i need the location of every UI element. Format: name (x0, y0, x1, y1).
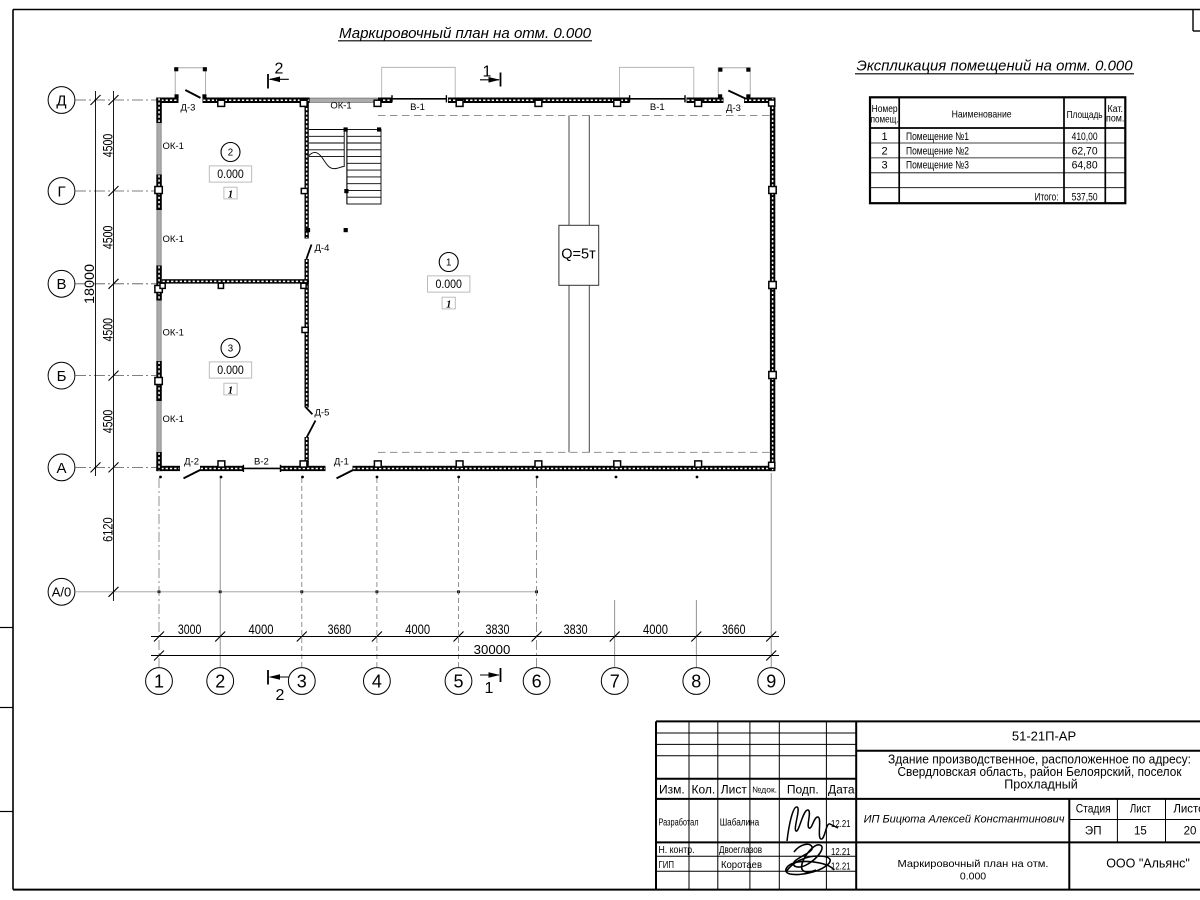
svg-text:Коротаев: Коротаев (721, 860, 762, 871)
svg-text:12.21: 12.21 (831, 862, 851, 873)
svg-text:1: 1 (228, 190, 233, 201)
svg-text:А: А (56, 460, 66, 477)
svg-text:4500: 4500 (101, 134, 116, 158)
svg-text:ГИП: ГИП (659, 860, 675, 871)
svg-text:1: 1 (483, 64, 492, 81)
svg-text:2: 2 (276, 687, 285, 704)
svg-text:410,00: 410,00 (1072, 131, 1098, 143)
svg-text:Б: Б (57, 368, 67, 385)
svg-text:А/0: А/0 (52, 584, 72, 599)
svg-text:0.000: 0.000 (435, 278, 462, 291)
svg-text:4500: 4500 (101, 410, 116, 434)
svg-text:3: 3 (297, 672, 307, 692)
svg-text:Кол.: Кол. (692, 783, 716, 797)
svg-text:1: 1 (446, 257, 451, 268)
svg-text:18000: 18000 (82, 264, 97, 304)
svg-text:ОК-1: ОК-1 (163, 414, 184, 425)
svg-text:Д-4: Д-4 (315, 243, 330, 254)
svg-text:9: 9 (766, 672, 776, 692)
svg-text:12.21: 12.21 (831, 847, 851, 858)
svg-text:51-21П-АР: 51-21П-АР (1012, 729, 1076, 744)
svg-text:0.000: 0.000 (960, 871, 986, 883)
svg-text:1: 1 (154, 672, 164, 692)
svg-text:Стадия: Стадия (1076, 804, 1111, 816)
svg-text:ОК-1: ОК-1 (330, 100, 351, 111)
svg-text:5: 5 (453, 672, 463, 692)
svg-text:2: 2 (228, 147, 233, 158)
svg-text:Экспликация помещений на отм.: Экспликация помещений на отм. 0.000 (857, 58, 1134, 75)
svg-text:3660: 3660 (722, 622, 746, 637)
svg-text:Разработал: Разработал (659, 817, 699, 829)
svg-text:Q=5т: Q=5т (561, 247, 596, 263)
svg-text:64,80: 64,80 (1072, 159, 1098, 171)
svg-text:ИП Бицюта Алексей Константинов: ИП Бицюта Алексей Константинович (864, 814, 1065, 826)
svg-text:4500: 4500 (101, 318, 116, 342)
svg-text:4500: 4500 (101, 226, 116, 250)
svg-text:8: 8 (691, 672, 701, 692)
svg-text:3000: 3000 (178, 622, 202, 637)
svg-text:В-1: В-1 (650, 102, 665, 113)
svg-text:Двоеглазов: Двоеглазов (719, 845, 762, 856)
svg-text:3830: 3830 (564, 622, 588, 637)
svg-text:Дата: Дата (828, 783, 855, 797)
svg-text:ОК-1: ОК-1 (163, 234, 184, 245)
svg-text:2: 2 (275, 61, 284, 78)
svg-text:Изм.: Изм. (659, 783, 685, 797)
svg-text:4000: 4000 (405, 622, 430, 637)
svg-text:В-1: В-1 (410, 102, 425, 113)
svg-text:ООО "Альянс": ООО "Альянс" (1106, 857, 1190, 871)
svg-text:Д-3: Д-3 (181, 103, 196, 114)
svg-text:№док.: №док. (752, 785, 777, 795)
svg-text:Д: Д (56, 92, 66, 109)
svg-text:6120: 6120 (101, 517, 116, 542)
svg-text:Маркировочный план на отм. 0.0: Маркировочный план на отм. 0.000 (339, 25, 592, 42)
svg-text:1: 1 (446, 300, 451, 311)
svg-text:Лист: Лист (721, 783, 748, 797)
svg-text:0.000: 0.000 (217, 168, 244, 181)
svg-text:2: 2 (882, 145, 888, 157)
svg-text:Помещение №1: Помещение №1 (906, 131, 969, 143)
svg-text:ОК-1: ОК-1 (163, 327, 184, 338)
svg-text:Прохладный: Прохладный (1004, 778, 1077, 792)
svg-text:помещ.: помещ. (871, 114, 899, 125)
svg-text:12.21: 12.21 (831, 819, 851, 830)
svg-text:15: 15 (1134, 826, 1147, 838)
svg-text:Лист: Лист (1130, 804, 1152, 816)
svg-text:Д-3: Д-3 (726, 103, 741, 114)
svg-text:4000: 4000 (249, 622, 274, 637)
svg-text:3830: 3830 (486, 622, 510, 637)
svg-text:Г: Г (57, 183, 65, 200)
svg-text:7: 7 (610, 672, 620, 692)
svg-text:3: 3 (228, 343, 233, 354)
svg-text:Подп.: Подп. (787, 783, 819, 797)
svg-text:1: 1 (228, 386, 233, 397)
svg-text:Помещение №2: Помещение №2 (906, 145, 969, 157)
svg-text:20: 20 (1184, 826, 1197, 838)
svg-text:Листов: Листов (1173, 804, 1200, 816)
svg-text:6: 6 (532, 672, 542, 692)
svg-text:4: 4 (372, 672, 382, 692)
svg-text:1: 1 (485, 680, 494, 697)
svg-text:Д-1: Д-1 (334, 457, 349, 468)
svg-text:В-2: В-2 (254, 457, 269, 468)
svg-text:пом.: пом. (1106, 114, 1124, 125)
svg-text:ОК-1: ОК-1 (163, 141, 184, 152)
svg-text:Шабалина: Шабалина (720, 817, 760, 829)
svg-text:4000: 4000 (643, 622, 668, 637)
svg-text:62,70: 62,70 (1072, 145, 1098, 157)
svg-text:0.000: 0.000 (217, 364, 244, 377)
svg-text:2: 2 (215, 672, 225, 692)
svg-text:537,50: 537,50 (1072, 192, 1098, 204)
svg-text:Наименование: Наименование (952, 109, 1012, 120)
svg-text:3680: 3680 (328, 622, 352, 637)
svg-text:Площадь: Площадь (1067, 110, 1103, 121)
svg-text:3: 3 (882, 159, 888, 171)
svg-text:30000: 30000 (474, 642, 511, 657)
svg-text:Маркировочный план на отм.: Маркировочный план на отм. (898, 858, 1049, 870)
svg-text:Итого:: Итого: (1035, 192, 1059, 204)
svg-text:Н. контр.: Н. контр. (659, 845, 695, 856)
svg-text:ЭП: ЭП (1085, 826, 1102, 838)
svg-text:Д-5: Д-5 (315, 408, 330, 419)
svg-text:В: В (56, 276, 66, 293)
svg-text:1: 1 (882, 131, 888, 143)
svg-text:Д-2: Д-2 (184, 457, 199, 468)
svg-text:Помещение №3: Помещение №3 (906, 159, 969, 171)
